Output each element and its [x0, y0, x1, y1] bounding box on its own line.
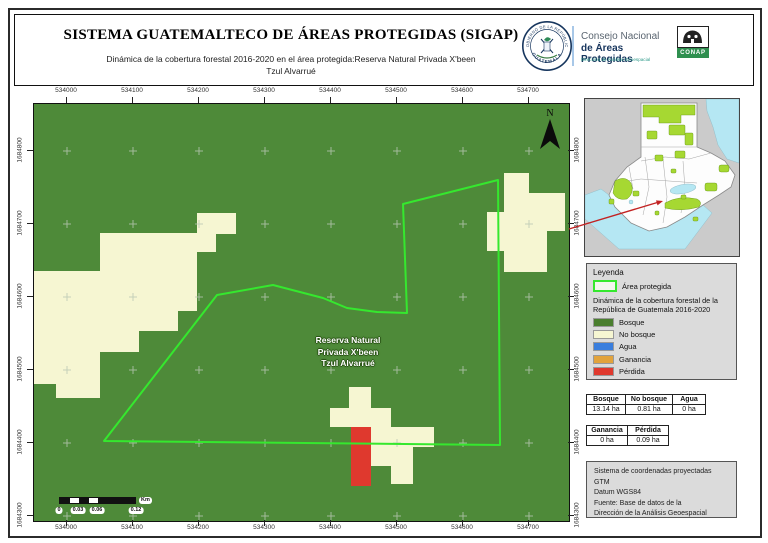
legend-item-no-bosque: No bosque: [593, 330, 730, 339]
government-seal-logo: GOBIERNO DE LA REPÚBLICA GUATEMALA: [521, 20, 573, 72]
conap-name-line1: Consejo Nacional: [581, 31, 677, 42]
coordinate-info-box: Sistema de coordenadas proyectadas GTM D…: [586, 461, 737, 518]
map-canvas: [34, 104, 569, 521]
header: SISTEMA GUATEMALTECO DE ÁREAS PROTEGIDAS…: [14, 14, 754, 86]
legend-item-perdida: Pérdida: [593, 367, 730, 376]
area-protegida-label: Área protegida: [622, 282, 671, 291]
legend-item-bosque: Bosque: [593, 318, 730, 327]
val-bosque: 13.14 ha: [587, 405, 626, 415]
main-map: Reserva Natural Privada X'been Tzul Alva…: [33, 103, 570, 522]
val-no-bosque: 0.81 ha: [626, 405, 673, 415]
info-line3: Datum WGS84: [594, 488, 729, 499]
info-line1: Sistema de coordenadas proyectadas: [594, 467, 729, 478]
subtitle-line2: Tzul Alvarrué: [56, 66, 526, 76]
legend-title: Leyenda: [593, 268, 730, 277]
sigap-map-layout: SISTEMA GUATEMALTECO DE ÁREAS PROTEGIDAS…: [0, 0, 768, 543]
conap-glyph-icon: [677, 26, 709, 48]
stats-table-change: Ganancia Pérdida 0 ha 0.09 ha: [586, 425, 669, 446]
conap-logo: CONAP: [677, 26, 709, 58]
stats-table-coverage: Bosque No bosque Agua 13.14 ha 0.81 ha 0…: [586, 394, 706, 415]
legend-panel: Leyenda Área protegida Dinámica de la co…: [586, 263, 737, 380]
area-label-line2: Privada X'been: [316, 346, 381, 358]
scale-bar-segments: [59, 497, 136, 504]
val-agua: 0 ha: [673, 405, 706, 415]
protected-area-name-label: Reserva Natural Privada X'been Tzul Alva…: [316, 335, 381, 370]
perdida-swatch: [593, 367, 614, 376]
ganancia-swatch: [593, 355, 614, 364]
legend-area-protegida-row: Área protegida: [593, 280, 730, 292]
legend-caption: Dinámica de la cobertura forestal de la …: [593, 296, 733, 314]
val-perdida: 0.09 ha: [628, 436, 669, 446]
inset-overview-map: [584, 98, 740, 257]
area-protegida-swatch: [593, 280, 617, 292]
conap-name-line3: Dirección de Análisis Geoespacial: [581, 57, 677, 62]
info-line2: GTM: [594, 478, 729, 489]
area-label-line3: Tzul Alvarrué: [316, 358, 381, 370]
scale-label-0: 0: [55, 507, 62, 514]
th-bosque: Bosque: [587, 395, 626, 405]
th-no-bosque: No bosque: [626, 395, 673, 405]
scale-label-3: 0.12: [129, 507, 144, 514]
perdida-patch: [351, 427, 371, 486]
scale-label-2: 0.06: [90, 507, 105, 514]
conap-badge-label: CONAP: [677, 48, 709, 58]
scale-bar-unit: Km: [139, 497, 152, 504]
logo-divider: [572, 26, 574, 66]
north-arrow-icon: [540, 119, 560, 151]
legend-item-agua: Agua: [593, 342, 730, 351]
th-agua: Agua: [673, 395, 706, 405]
north-arrow: N: [539, 108, 561, 156]
north-label: N: [539, 108, 561, 119]
info-line5: Dirección de la Análisis Geoespacial: [594, 509, 729, 520]
info-line4: Fuente: Base de datos de la: [594, 499, 729, 510]
area-label-line1: Reserva Natural: [316, 335, 381, 347]
scale-label-1: 0.03: [71, 507, 86, 514]
legend-item-ganancia: Ganancia: [593, 355, 730, 364]
val-ganancia: 0 ha: [587, 436, 628, 446]
page-title: SISTEMA GUATEMALTECO DE ÁREAS PROTEGIDAS…: [56, 27, 526, 44]
bosque-swatch: [593, 318, 614, 327]
th-ganancia: Ganancia: [587, 426, 628, 436]
th-perdida: Pérdida: [628, 426, 669, 436]
agua-swatch: [593, 342, 614, 351]
no-bosque-swatch: [593, 330, 614, 339]
subtitle-line1: Dinámica de la cobertura forestal 2016-2…: [56, 54, 526, 64]
